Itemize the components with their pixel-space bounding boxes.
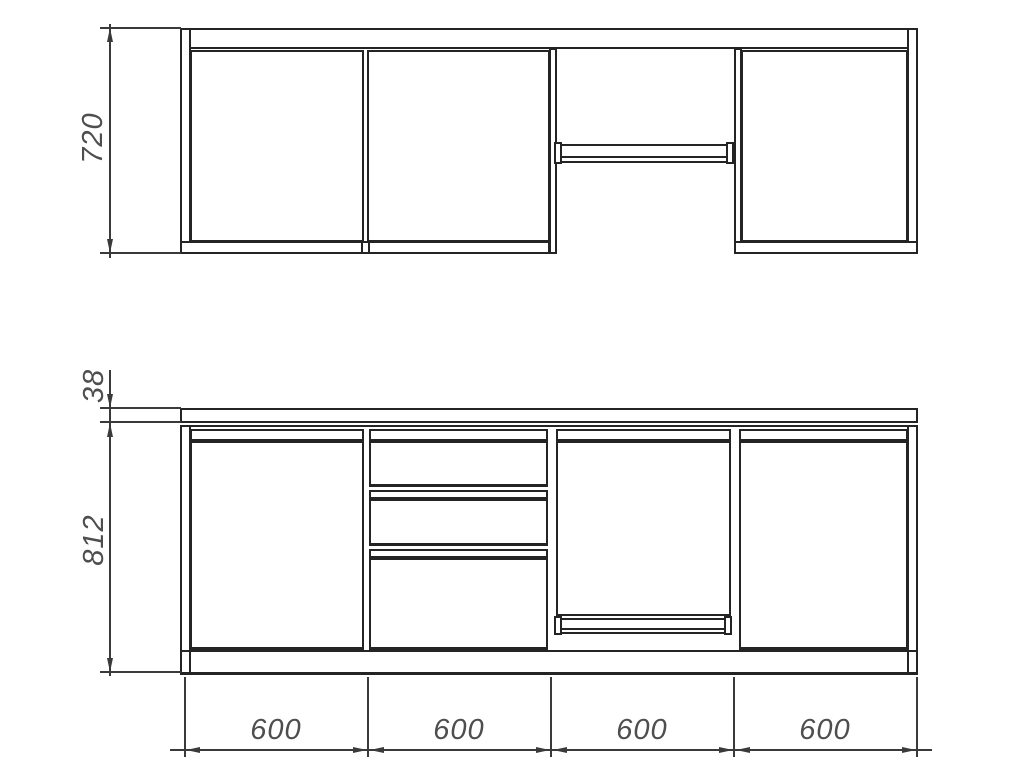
width-arrow-seg3-left <box>553 747 567 753</box>
upper-door-2 <box>367 50 550 242</box>
upper-top-panel <box>180 28 918 49</box>
width-label-1: 600 <box>236 714 316 746</box>
drawer-front-1 <box>369 441 548 487</box>
width-ext-0 <box>184 677 186 757</box>
width-label-4: 600 <box>785 714 865 746</box>
dim-38-label: 38 <box>78 356 110 416</box>
width-ext-3 <box>733 677 735 757</box>
width-arrow-seg2-right <box>536 747 550 753</box>
width-dim-line <box>170 749 932 751</box>
dim-720-label: 720 <box>77 98 109 178</box>
width-label-3: 600 <box>602 714 682 746</box>
appliance-rail-support-left <box>554 616 562 635</box>
width-arrow-seg2-left <box>370 747 384 753</box>
width-label-2: 600 <box>419 714 499 746</box>
width-ext-2 <box>550 677 552 757</box>
drawer-spacer-1 <box>369 490 548 499</box>
dim-812-arrow-top <box>107 423 113 437</box>
base-rail-3 <box>556 429 731 441</box>
upper-door-1 <box>190 50 364 242</box>
base-rail-2 <box>369 429 548 441</box>
technical-drawing-canvas: 720 38 812 600 600 600 600 <box>0 0 1024 768</box>
upper-shelf-support-left <box>554 142 562 164</box>
width-arrow-seg1-left <box>186 747 200 753</box>
dim-720-arrow-top <box>107 28 113 42</box>
appliance-bottom-rail <box>556 618 731 630</box>
plinth-line <box>182 650 916 652</box>
width-arrow-seg4-left <box>736 747 750 753</box>
base-rail-1 <box>190 429 364 441</box>
worktop <box>180 408 918 423</box>
base-rail-4 <box>739 429 908 441</box>
dim-812-label: 812 <box>78 500 110 580</box>
upper-bottom-panel-right <box>734 241 918 254</box>
drawer-front-3 <box>369 558 548 650</box>
upper-niche-shelf <box>556 144 736 158</box>
upper-right-side-panel <box>907 28 918 254</box>
base-door-1 <box>190 441 364 650</box>
appliance-rail-support-right <box>724 616 732 635</box>
dim-720-arrow-bottom <box>107 239 113 253</box>
dim-812-arrow-bottom <box>107 658 113 672</box>
base-door-4 <box>739 441 908 650</box>
width-ext-4 <box>916 677 918 757</box>
upper-door-gap-mark <box>361 241 370 254</box>
width-arrow-seg1-right <box>353 747 367 753</box>
upper-niche-shelf-shadow-line <box>557 161 734 163</box>
drawer-front-2 <box>369 499 548 546</box>
upper-shelf-support-right <box>726 142 734 164</box>
appliance-panel <box>556 441 731 616</box>
width-arrow-seg3-right <box>719 747 733 753</box>
drawer-spacer-2 <box>369 549 548 558</box>
upper-door-right <box>741 50 908 242</box>
width-arrow-seg4-right <box>902 747 916 753</box>
dim-720-line <box>109 24 111 258</box>
appliance-rail-shadow-line <box>557 632 730 634</box>
width-ext-1 <box>367 677 369 757</box>
